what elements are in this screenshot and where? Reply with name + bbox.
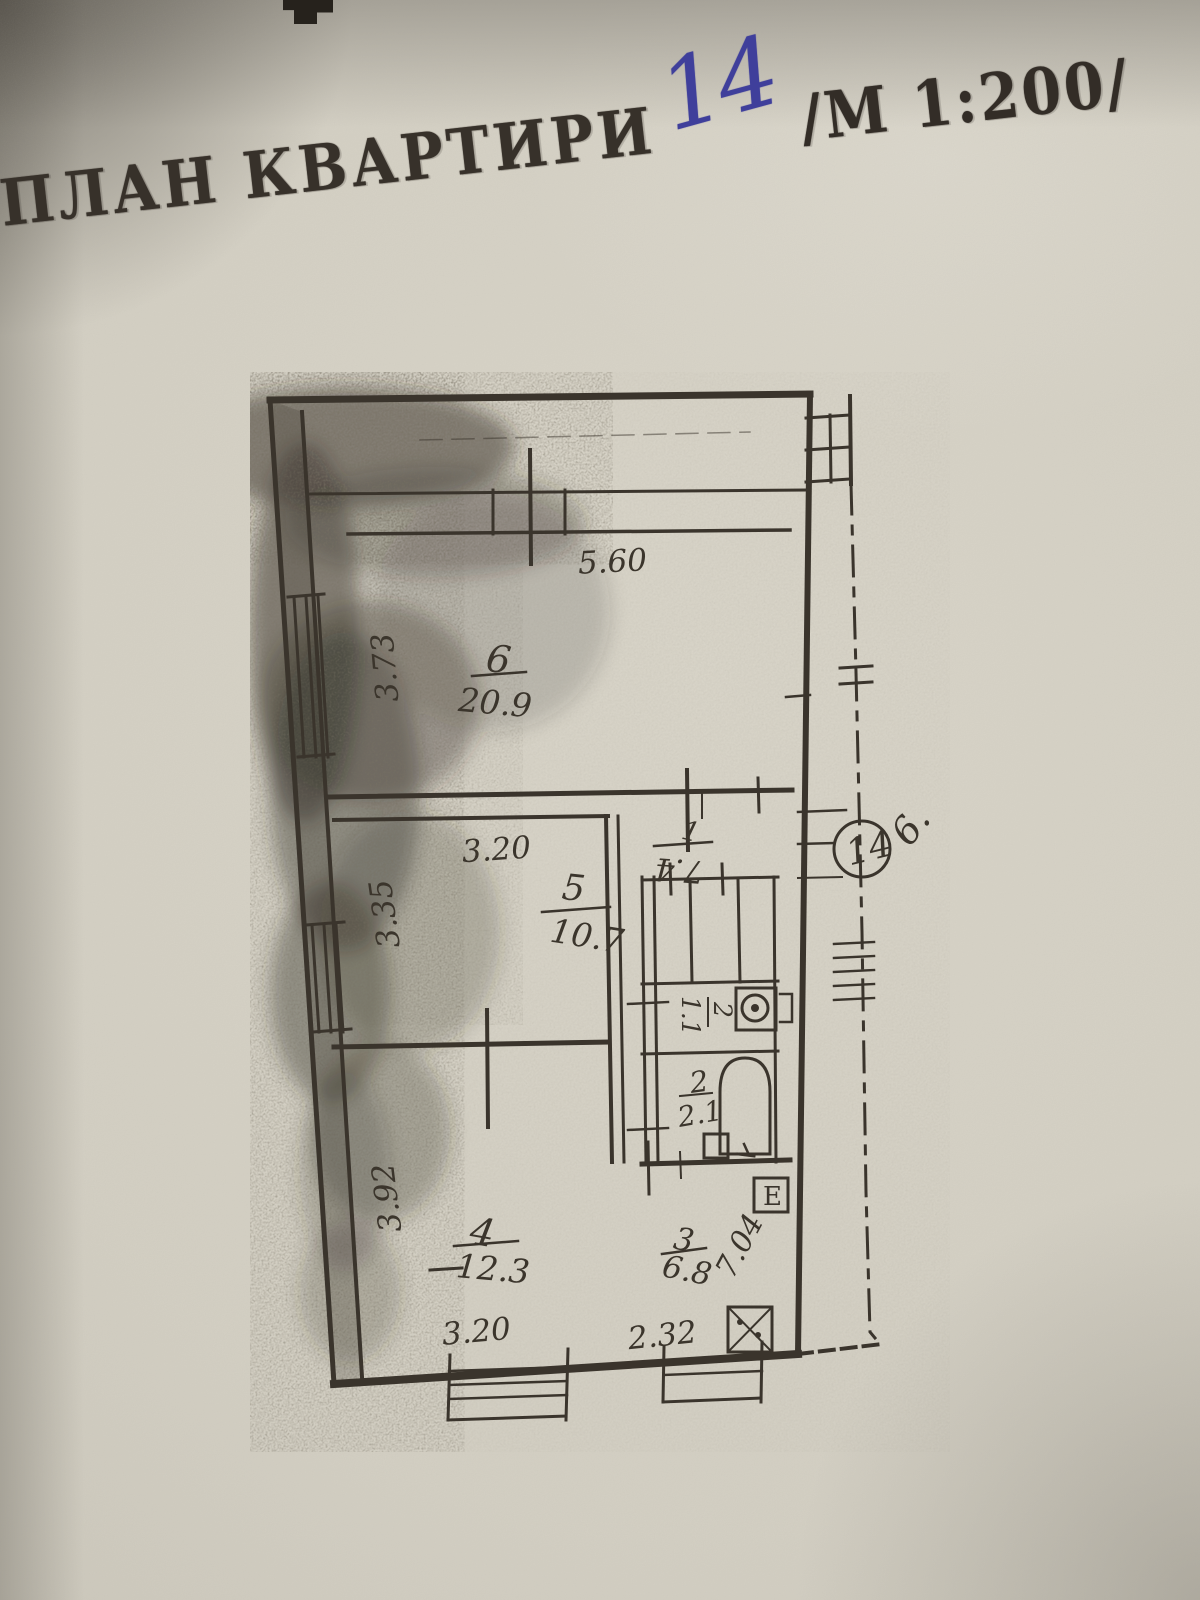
cutoff-stamp-mark [283, 0, 333, 24]
corridor-area: 7.4 [653, 850, 705, 889]
dim-room6-depth: 3.73 [364, 632, 406, 704]
toilet-area: 1.1 [676, 996, 705, 1036]
room6-area: 20.9 [456, 680, 534, 725]
dim-room5-width: 3.20 [461, 830, 532, 871]
room5-number: 5 [560, 867, 587, 910]
dim-kitchen-width: 2.32 [625, 1314, 698, 1357]
scanned-floor-plan-page: { "stamp": { "title": "ПЛАН КВАРТИРИ", "… [0, 0, 1200, 1600]
dim-room4-width: 3.20 [440, 1311, 512, 1353]
dim-room6-width: 5.60 [577, 542, 648, 582]
title-stamp: ПЛАН КВАРТИРИ14/М 1:200/ [0, 19, 1043, 284]
floor-plan-svg: Е [250, 372, 950, 1452]
stove-label: Е [763, 1182, 782, 1212]
room4-area: 12.3 [455, 1246, 532, 1291]
apartment-number-handwritten: 14 [647, 15, 787, 153]
stamp-title: ПЛАН КВАРТИРИ [0, 93, 659, 241]
stamp-scale: /М 1:200/ [797, 45, 1135, 156]
toilet-number: 2 [708, 1001, 737, 1018]
